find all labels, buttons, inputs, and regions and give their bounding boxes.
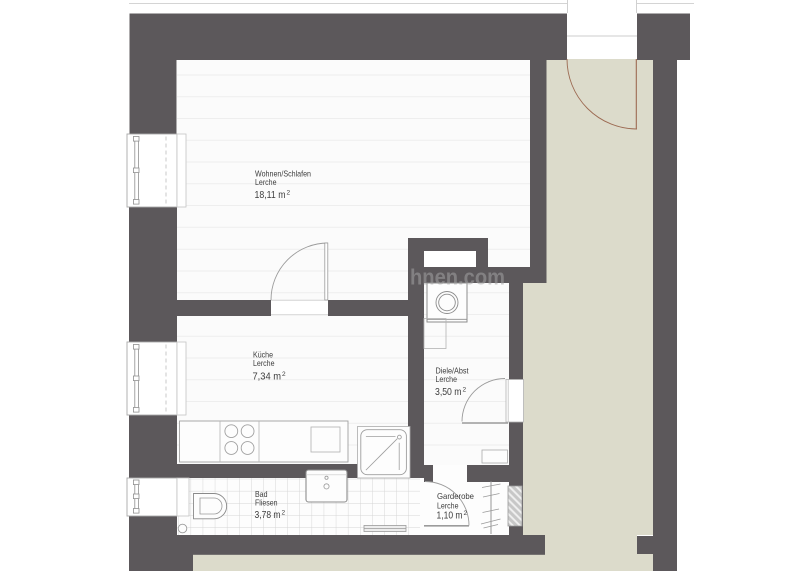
svg-text:1,10 m: 1,10 m [437, 511, 463, 522]
svg-text:Lerche: Lerche [255, 178, 277, 187]
svg-text:Lerche: Lerche [436, 375, 458, 384]
svg-text:3,78 m: 3,78 m [255, 510, 281, 521]
svg-text:hnen.com: hnen.com [410, 265, 505, 290]
svg-text:2: 2 [463, 387, 467, 394]
svg-text:2: 2 [464, 510, 468, 517]
svg-text:3,50 m: 3,50 m [435, 387, 462, 398]
svg-text:18,11 m: 18,11 m [255, 190, 286, 201]
svg-text:Fliesen: Fliesen [255, 499, 278, 508]
svg-text:Lerche: Lerche [253, 359, 275, 368]
svg-text:7,34 m: 7,34 m [253, 372, 282, 383]
svg-text:Lerche: Lerche [437, 502, 459, 511]
svg-text:Garderobe: Garderobe [437, 492, 474, 501]
svg-text:2: 2 [287, 190, 291, 197]
svg-text:2: 2 [282, 510, 286, 517]
svg-text:2: 2 [282, 371, 286, 378]
